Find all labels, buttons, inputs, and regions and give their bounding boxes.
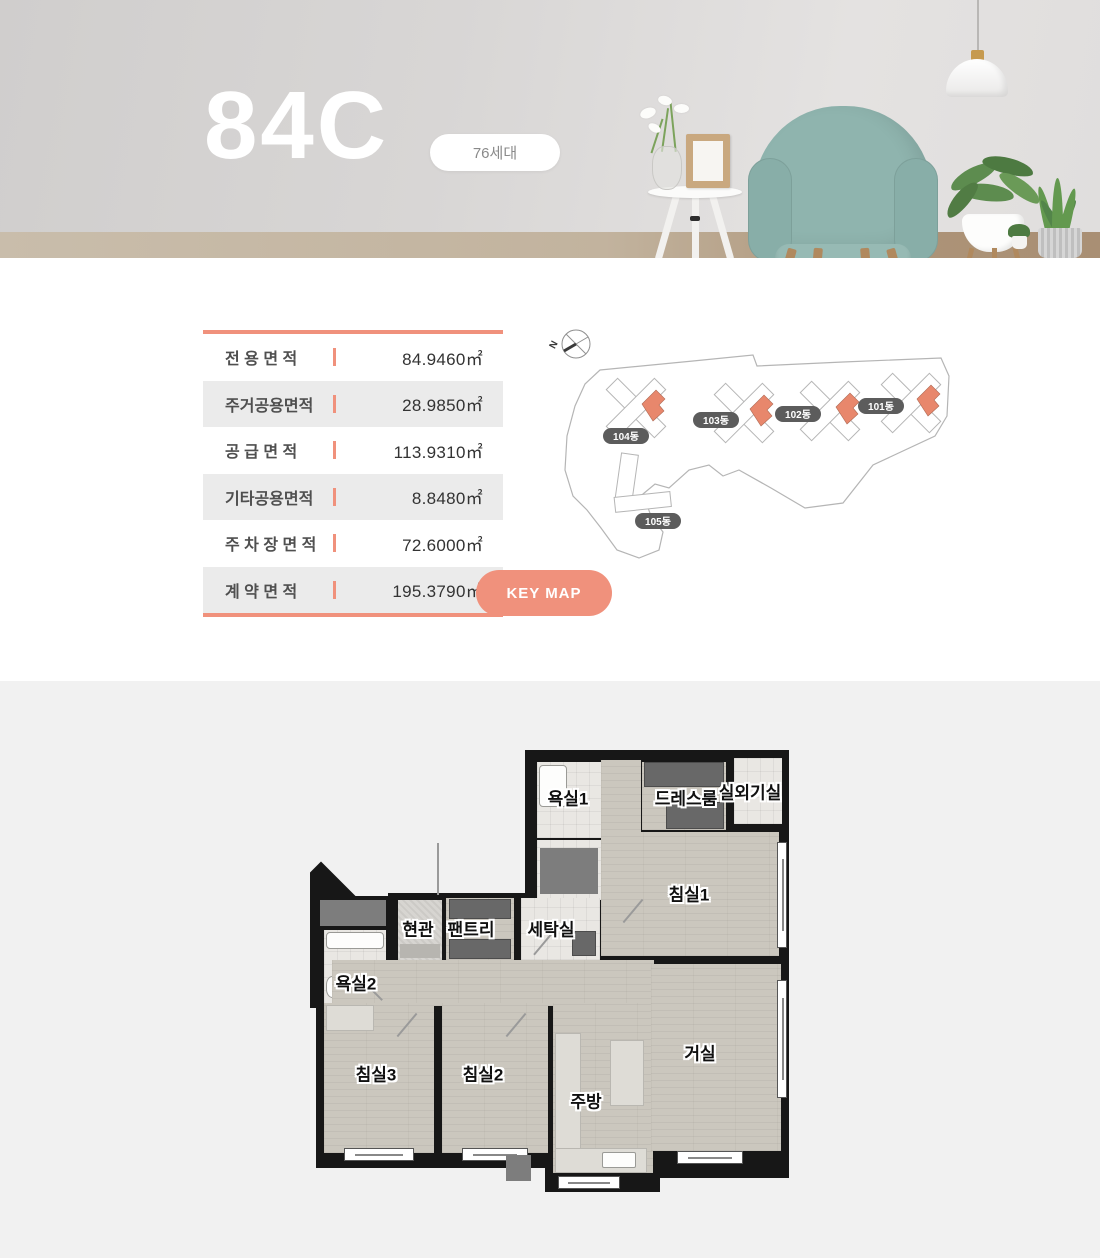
wardrobe-icon bbox=[644, 762, 724, 787]
table-row: 계 약 면 적 195.3790㎡ bbox=[203, 567, 503, 614]
window bbox=[777, 842, 787, 948]
room-label-laundry: 세탁실 bbox=[528, 916, 575, 941]
bathtub-icon bbox=[326, 932, 384, 949]
floor-plan: 욕실1 드레스룸 실외기실 침실1 현관 팬트리 세탁실 욕실2 침실3 침실2… bbox=[310, 748, 792, 1228]
window bbox=[677, 1151, 743, 1164]
table-row: 기타공용면적 8.8480㎡ bbox=[203, 474, 503, 521]
building-pill-102: 102동 bbox=[785, 409, 811, 421]
porch bbox=[320, 900, 386, 926]
page: 84C 76세대 전 용 면 적 84.9460㎡ 주거공용면적 28.9850… bbox=[0, 0, 1100, 1258]
balcony-line bbox=[437, 843, 439, 895]
entrance-mat bbox=[400, 944, 440, 958]
site-key-map: N bbox=[543, 318, 955, 563]
area-info-section: 전 용 면 적 84.9460㎡ 주거공용면적 28.9850㎡ 공 급 면 적… bbox=[0, 258, 1100, 681]
building-pill-103: 103동 bbox=[703, 415, 729, 427]
area-value: 84.9460㎡ bbox=[336, 345, 503, 370]
room-label-bed1: 침실1 bbox=[669, 881, 710, 906]
svg-text:N: N bbox=[548, 339, 561, 351]
room-label-living: 거실 bbox=[684, 1040, 715, 1065]
household-count-badge: 76세대 bbox=[430, 134, 560, 171]
table-row: 주거공용면적 28.9850㎡ bbox=[203, 381, 503, 428]
area-label: 공 급 면 적 bbox=[203, 438, 325, 462]
room-label-bed2: 침실2 bbox=[463, 1061, 504, 1086]
washer-icon bbox=[572, 931, 596, 956]
table-row: 전 용 면 적 84.9460㎡ bbox=[203, 334, 503, 381]
pendant-lamp-icon bbox=[977, 0, 979, 56]
room-label-bath1: 욕실1 bbox=[548, 785, 589, 810]
kitchen-island bbox=[610, 1040, 644, 1106]
table-row: 공 급 면 적 113.9310㎡ bbox=[203, 427, 503, 474]
area-value: 113.9310㎡ bbox=[336, 438, 503, 463]
room-label-bath2: 욕실2 bbox=[336, 970, 377, 995]
sink-icon bbox=[602, 1152, 636, 1168]
picture-frame-icon bbox=[686, 134, 730, 188]
window bbox=[344, 1148, 414, 1161]
area-table: 전 용 면 적 84.9460㎡ 주거공용면적 28.9850㎡ 공 급 면 적… bbox=[203, 330, 503, 617]
room-label-entry: 현관 bbox=[402, 916, 433, 941]
compass-icon: N bbox=[548, 330, 590, 358]
window bbox=[777, 980, 787, 1098]
area-label: 전 용 면 적 bbox=[203, 345, 325, 369]
ac-ledge bbox=[506, 1155, 531, 1181]
shaft bbox=[540, 848, 598, 894]
area-label: 기타공용면적 bbox=[203, 485, 325, 509]
room-living bbox=[651, 964, 781, 1151]
room-label-outdoor: 실외기실 bbox=[719, 779, 782, 804]
closet bbox=[326, 1005, 374, 1031]
room-label-pantry: 팬트리 bbox=[448, 916, 495, 941]
building-pill-104: 104동 bbox=[613, 431, 639, 443]
table-row: 주 차 장 면 적 72.6000㎡ bbox=[203, 520, 503, 567]
area-label: 주 차 장 면 적 bbox=[203, 531, 325, 555]
unit-type-title: 84C bbox=[204, 78, 389, 174]
area-label: 주거공용면적 bbox=[203, 392, 325, 416]
room-label-bed3: 침실3 bbox=[356, 1061, 397, 1086]
hero-banner: 84C 76세대 bbox=[0, 0, 1100, 258]
key-map-button[interactable]: KEY MAP bbox=[476, 570, 612, 616]
room-label-dress: 드레스룸 bbox=[655, 785, 718, 810]
window bbox=[558, 1176, 620, 1189]
building-pill-101: 101동 bbox=[868, 401, 894, 413]
floor-plan-section: 욕실1 드레스룸 실외기실 침실1 현관 팬트리 세탁실 욕실2 침실3 침실2… bbox=[0, 681, 1100, 1258]
area-value: 72.6000㎡ bbox=[336, 531, 503, 556]
area-label: 계 약 면 적 bbox=[203, 578, 325, 602]
building-pill-105: 105동 bbox=[645, 516, 671, 528]
area-value: 28.9850㎡ bbox=[336, 391, 503, 416]
room-label-kitchen: 주방 bbox=[570, 1088, 601, 1113]
area-value: 8.8480㎡ bbox=[336, 484, 503, 509]
